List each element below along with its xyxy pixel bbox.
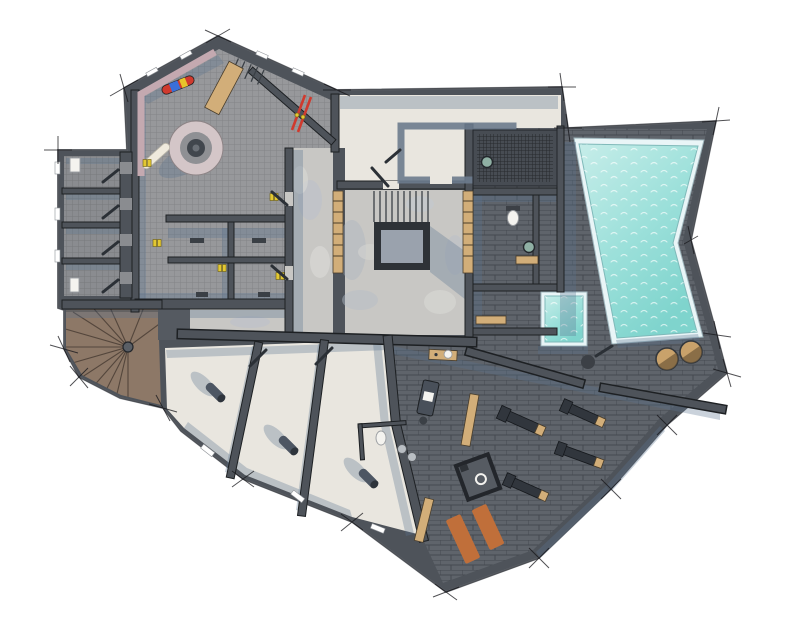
sauna-bench [476,316,506,324]
spa-fixture [482,157,493,168]
floor-plan [0,0,800,640]
floor-plan-image [0,0,800,640]
round-boot-dryer [169,121,223,175]
spa-fixture [524,242,535,253]
spiral-stair-pole [123,342,133,352]
reception-desk [429,349,457,360]
sauna-bench [516,256,538,264]
